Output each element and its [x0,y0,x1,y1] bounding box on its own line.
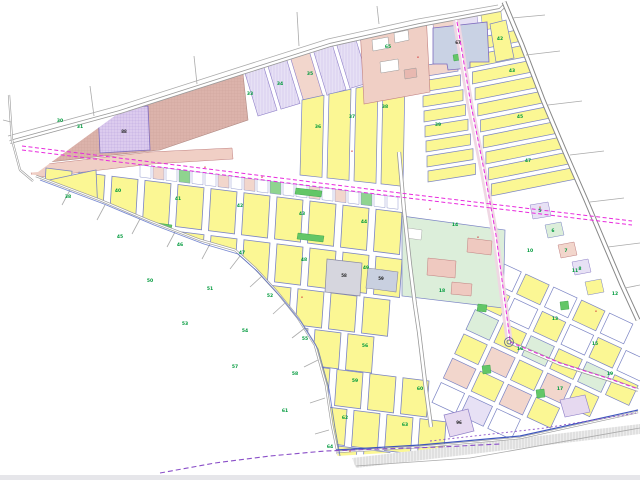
red-annotation-mark: x [261,175,263,179]
hospital-building-4 [404,68,417,79]
red-annotation-mark: x [477,235,479,239]
blocks-rowA-block [176,185,205,230]
rowZ-tall-columns-block [300,95,324,177]
tiny-parcel-row-block [361,193,372,206]
block-number-label: 35 [307,71,313,77]
rowZ-tall-columns-block [327,89,351,180]
blocks-rowC-block [362,297,391,336]
red-annotation-mark: x [349,449,351,453]
park-dot-6 [536,389,545,398]
block-number-label: 7 [564,248,567,254]
tiny-parcel-row-block [348,191,359,204]
block-number-label: 65 [385,44,391,50]
block-number-label: 59 [352,378,358,384]
pale-green-building-3 [451,282,472,296]
hwy-parcel-5 [585,279,604,295]
block-number-label: 17 [557,386,563,392]
block-number-label: 42 [497,36,503,42]
block-number-label: 48 [301,257,307,263]
tiny-parcel-row-block [140,165,151,178]
pale-green-building-1 [467,238,492,255]
block-number-label: 34 [277,81,283,87]
block-number-label: 33 [247,91,253,97]
tiny-parcel-row-block [387,196,398,209]
tiny-parcel-row-block [322,188,333,201]
blocks-rowC-block [329,293,358,332]
block-number-label: 31 [77,124,83,130]
bottom-edge-strip [0,475,640,480]
tiny-parcel-row-block [257,180,268,193]
pale-green-building-2 [427,258,456,278]
block-number-label-dark: 96 [456,420,462,425]
park-dot-2 [477,304,487,312]
block-number-label-dark: 58 [341,273,347,278]
block-number-label: 10 [527,248,533,254]
blocks-rowF-block [352,410,381,449]
block-number-label: 47 [239,250,245,256]
block-number-label: 36 [315,124,321,130]
block-number-label: 12 [612,291,618,297]
tiny-parcel-row-block [192,172,203,185]
block-number-label: 51 [207,286,213,292]
block-number-label: 42 [237,203,243,209]
park-dot-3 [482,365,491,374]
block-number-label: 47 [525,158,531,164]
block-number-label: 50 [147,278,153,284]
tiny-parcel-row-block [335,189,346,202]
tiny-parcel-row-block [374,194,385,207]
block-number-label: 44 [361,219,367,225]
blocks-rowA-block [341,205,370,250]
block-number-label: 14 [452,222,458,228]
tiny-parcel-row-block [231,176,242,189]
block-number-label: 43 [509,68,515,74]
blocks-rowB-block [275,244,304,285]
block-number-label: 61 [282,408,288,414]
block-number-label: 39 [435,122,441,128]
block-number-label: 62 [342,415,348,421]
block-number-label: 8 [578,266,581,272]
tiny-parcel-row-block [205,173,216,186]
red-annotation-mark: x [301,295,303,299]
tiny-parcel-row-block [218,175,229,188]
blocks-rowE-block [335,370,364,409]
block-number-label: 54 [242,328,248,334]
blocks-rowD-block [346,334,375,373]
red-annotation-mark: x [417,55,419,59]
block-number-label: 45 [117,234,123,240]
park-dot-4 [560,301,569,310]
block-number-label: 57 [232,364,238,370]
blocks-rowA-block [209,189,238,234]
block-number-label: 55 [302,336,308,342]
block-number-label: 45 [517,114,523,120]
red-annotation-mark: x [429,207,431,211]
block-number-label: 43 [299,211,305,217]
block-number-label: 15 [592,341,598,347]
red-annotation-mark: x [351,149,353,153]
block-number-label: 52 [267,293,273,299]
block-number-label: 64 [327,444,333,450]
city-map-canvas: 3031333435363738394243454765384041424344… [0,0,640,480]
block-number-label: 58 [292,371,298,377]
tiny-parcel-row-block [283,183,294,196]
block-number-label: 37 [349,114,355,120]
block-number-label: 38 [382,104,388,110]
block-number-label: 41 [175,196,181,202]
block-number-label: 53 [182,321,188,327]
blocks-rowA-block [374,209,403,254]
block-number-label: 11 [572,268,578,274]
block-number-label-dark: 88 [121,129,127,134]
tiny-parcel-row-block [166,168,177,181]
tiny-parcel-row-block [179,170,190,183]
red-annotation-mark: x [539,205,541,209]
tiny-parcel-row-block [153,167,164,180]
pale-green-building-4 [407,228,422,240]
block-number-label: 18 [439,288,445,294]
tiny-parcel-row-block [270,181,281,194]
block-number-label: 46 [177,242,183,248]
blocks-rowE-block [368,374,397,413]
block-number-label: 19 [607,371,613,377]
block-number-label: 40 [115,188,121,194]
red-annotation-mark: x [595,309,597,313]
block-number-label: 63 [402,422,408,428]
block-number-label: 6 [551,228,554,234]
block-number-label-dark: 67 [455,40,461,45]
block-number-label-dark: 59 [378,276,384,281]
tiny-parcel-row-block [244,178,255,191]
block-number-label: 60 [417,386,423,392]
block-number-label: 49 [363,265,369,271]
blocks-rowA-block [242,193,271,238]
red-annotation-mark: x [204,165,206,169]
cadastral-map: 3031333435363738394243454765384041424344… [0,0,640,480]
block-number-label: 38 [65,194,71,200]
block-number-label: 56 [362,343,368,349]
block-number-label: 16 [517,346,523,352]
block-number-label: 13 [552,316,558,322]
block-number-label: 30 [57,118,63,124]
